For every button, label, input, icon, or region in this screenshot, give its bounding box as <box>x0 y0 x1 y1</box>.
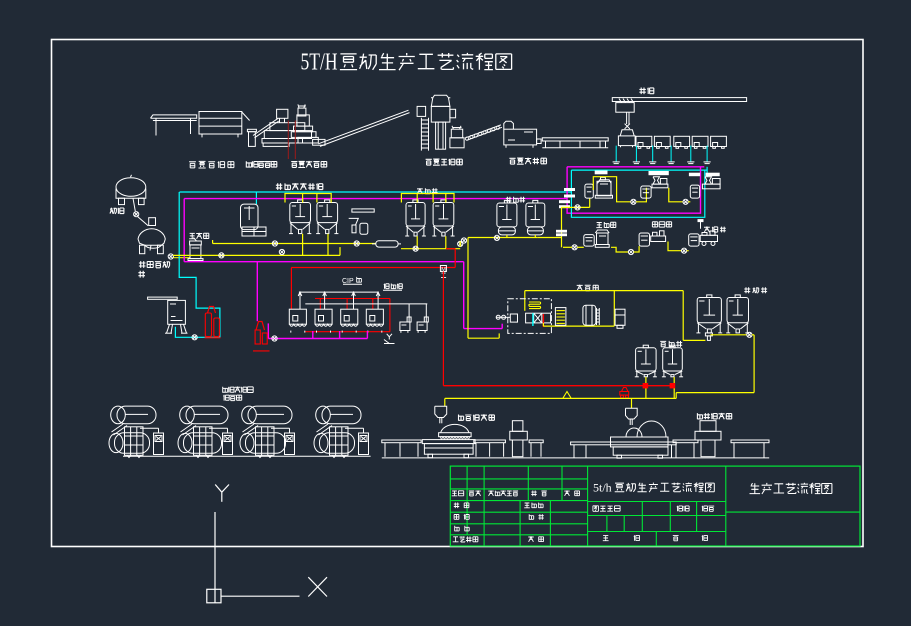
svg-text:5t/h: 5t/h <box>593 481 612 495</box>
svg-text:5T/H: 5T/H <box>301 50 338 76</box>
